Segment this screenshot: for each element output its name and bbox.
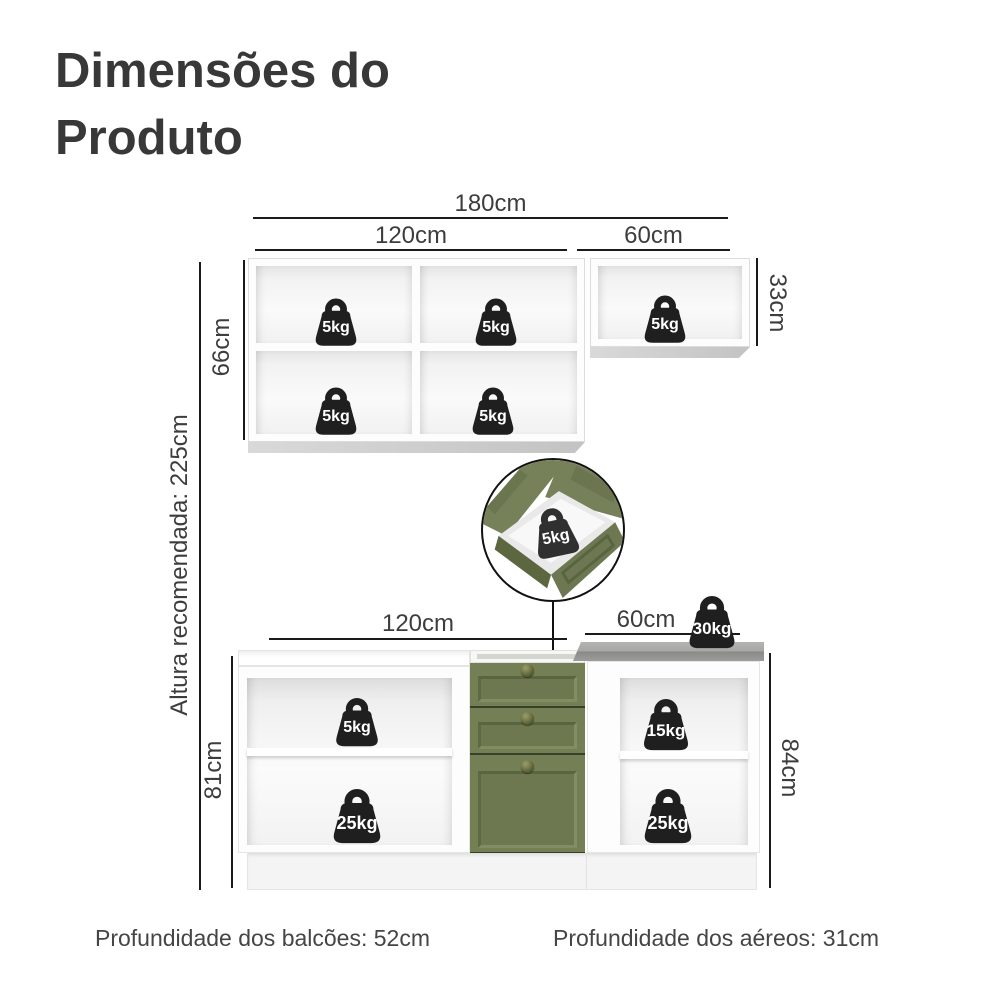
kettlebell-weight-icon: 5kg <box>309 387 363 437</box>
dim-line-upper-right-height <box>756 258 758 346</box>
dim-label-upper-right-width: 60cm <box>577 222 730 250</box>
kettlebell-weight-icon: 5kg <box>469 298 523 348</box>
dim-line-lower-left-width <box>269 638 567 640</box>
kettlebell-weight-icon: 30kg <box>681 596 743 650</box>
upper-cabinet-right-bottom-shadow <box>590 347 750 358</box>
weight-label: 5kg <box>329 719 385 737</box>
drawer-detail-circle: 5kg <box>481 458 625 602</box>
drawer-front <box>470 755 585 852</box>
wall-units-depth-note: Profundidade dos aéreos: 31cm <box>553 925 879 952</box>
kettlebell-weight-icon: 25kg <box>636 789 700 845</box>
dim-line-upper-right-width <box>577 249 730 251</box>
counters-depth-note: Profundidade dos balcões: 52cm <box>95 925 430 952</box>
cabinet-plinth <box>247 853 757 890</box>
shelf <box>247 748 452 756</box>
drawer-panel <box>478 676 577 702</box>
weight-label: 30kg <box>681 619 743 639</box>
weight-label: 5kg <box>466 408 520 426</box>
weight-label: 5kg <box>638 316 692 334</box>
upper-cabinet-left-bottom-shadow <box>248 442 585 453</box>
weight-label: 25kg <box>325 813 389 834</box>
dim-label-lower-left-width: 120cm <box>269 610 567 638</box>
dim-line-upper-left-height <box>243 260 245 440</box>
weight-label: 5kg <box>309 319 363 337</box>
page-title: Dimensões do Produto <box>55 38 390 172</box>
drawer-cabinet-top-rim <box>470 650 585 663</box>
dim-label-total-width: 180cm <box>253 190 728 218</box>
page-title-line1: Dimensões do <box>55 38 390 105</box>
drawer-panel <box>478 722 577 749</box>
dim-label-upper-left-width: 120cm <box>255 222 567 250</box>
drawer-knob <box>521 664 534 677</box>
product-dimensions-diagram: Dimensões do Produto 180cm 120cm 60cm 66… <box>0 0 1000 1000</box>
weight-label: 15kg <box>636 721 696 741</box>
drawer-front <box>470 708 585 753</box>
dim-line-lower-right-height <box>769 653 771 888</box>
drawer-knob <box>521 760 534 773</box>
page-title-line2: Produto <box>55 105 390 172</box>
plinth-seam <box>586 853 587 889</box>
kettlebell-weight-icon: 5kg <box>309 298 363 348</box>
dim-line-upper-left-width <box>255 249 567 251</box>
kettlebell-weight-icon: 5kg <box>638 295 692 345</box>
weight-label: 25kg <box>636 813 700 834</box>
dim-line-lower-left-height <box>231 656 233 888</box>
kettlebell-weight-icon: 25kg <box>325 789 389 845</box>
weight-label: 5kg <box>309 408 363 426</box>
lower-left-countertop <box>238 650 470 666</box>
dim-label-lower-right-height: 84cm <box>775 698 803 838</box>
dim-label-lower-left-height: 81cm <box>200 700 228 840</box>
drawer-cabinet <box>470 650 585 853</box>
shelf <box>620 751 748 759</box>
kettlebell-weight-icon: 5kg <box>466 387 520 437</box>
kettlebell-weight-icon: 5kg <box>329 698 385 748</box>
drawer-knob <box>521 712 534 725</box>
drawer-glide <box>477 654 578 659</box>
kettlebell-weight-icon: 15kg <box>636 699 696 752</box>
drawer-front <box>470 663 585 706</box>
dim-label-recommended-height: Altura recomendada: 225cm <box>166 395 194 735</box>
dim-label-upper-left-height: 66cm <box>208 277 236 417</box>
drawer-panel <box>478 771 577 848</box>
dim-label-upper-right-height: 33cm <box>763 233 791 373</box>
dim-line-total-width <box>253 217 728 219</box>
weight-label: 5kg <box>469 319 523 337</box>
